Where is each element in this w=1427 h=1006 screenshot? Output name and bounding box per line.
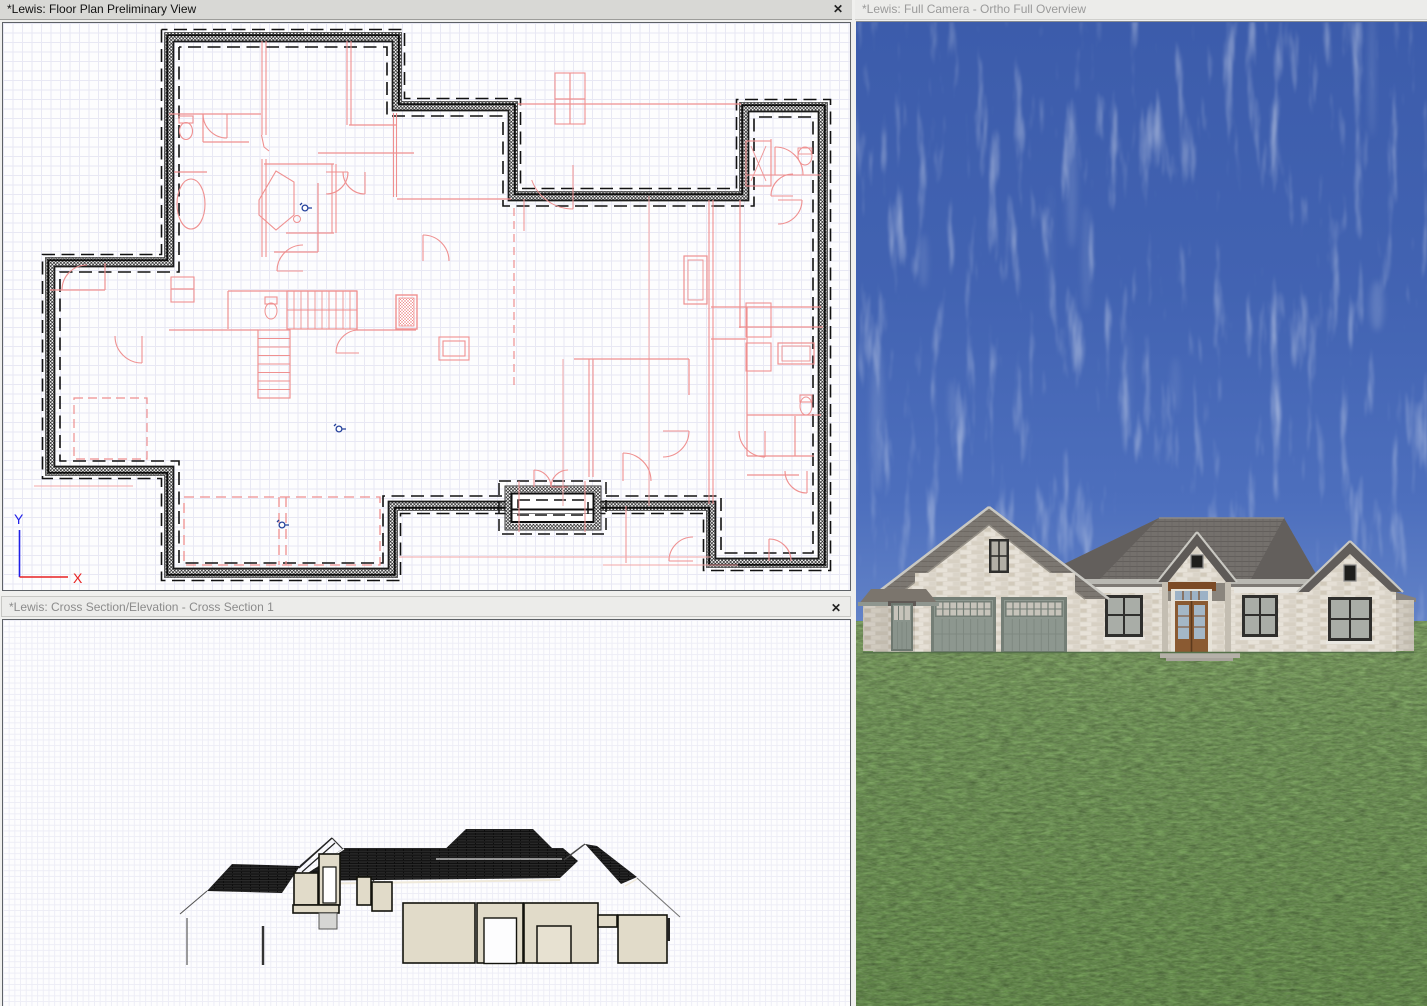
- svg-text:X: X: [73, 570, 83, 586]
- svg-text:Y: Y: [14, 511, 24, 527]
